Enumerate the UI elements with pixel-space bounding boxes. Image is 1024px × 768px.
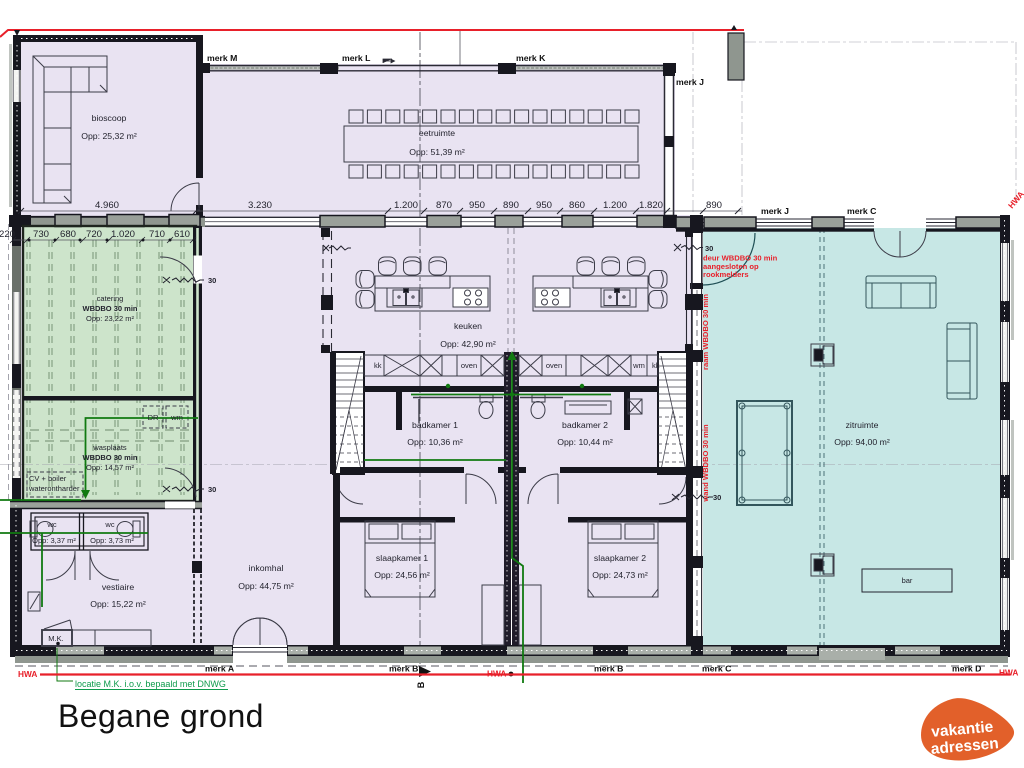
svg-text:950: 950 [469,200,485,211]
svg-text:kk: kk [374,361,382,370]
svg-text:Opp: 94,00 m²: Opp: 94,00 m² [834,437,890,447]
svg-text:Opp: 10,36 m²: Opp: 10,36 m² [407,437,463,447]
svg-text:wand WBDBO 30 min: wand WBDBO 30 min [701,424,710,503]
svg-text:keuken: keuken [454,321,482,331]
svg-text:Begane grond: Begane grond [58,698,264,734]
svg-text:Opp: 15,22 m²: Opp: 15,22 m² [90,599,146,609]
svg-text:merk M: merk M [207,53,237,63]
svg-text:CV + boiler: CV + boiler [29,474,67,483]
svg-text:30: 30 [208,276,216,285]
svg-text:merk C: merk C [702,664,732,674]
svg-text:HWA: HWA [999,668,1018,678]
svg-text:3.230: 3.230 [248,200,272,211]
svg-text:Opp: 23,22 m²: Opp: 23,22 m² [86,314,134,323]
svg-text:Opp: 24,73 m²: Opp: 24,73 m² [592,570,648,580]
svg-text:720: 720 [86,229,102,240]
svg-text:badkamer 2: badkamer 2 [562,420,608,430]
svg-text:wm: wm [632,361,645,370]
svg-text:locatie M.K. i.o.v. bepaald me: locatie M.K. i.o.v. bepaald met DNWG [75,679,226,689]
svg-text:890: 890 [503,200,519,211]
svg-text:raam WBDBO 30 min: raam WBDBO 30 min [701,294,710,370]
svg-text:1.820: 1.820 [639,200,663,211]
svg-text:merk C: merk C [847,206,877,216]
svg-text:1.020: 1.020 [111,229,135,240]
svg-text:catering: catering [97,294,124,303]
svg-text:Opp: 25,32 m²: Opp: 25,32 m² [81,131,137,141]
svg-text:1.200: 1.200 [603,200,627,211]
svg-text:Opp: 42,90 m²: Opp: 42,90 m² [440,339,496,349]
svg-text:HWA: HWA [18,669,37,679]
svg-text:merk K: merk K [516,53,546,63]
svg-text:220: 220 [0,229,15,240]
svg-text:B: B [416,681,426,688]
svg-text:vestiaire: vestiaire [102,582,135,592]
svg-text:oven: oven [546,361,562,370]
svg-text:950: 950 [536,200,552,211]
svg-text:860: 860 [569,200,585,211]
svg-text:870: 870 [436,200,452,211]
svg-text:30: 30 [208,485,216,494]
svg-text:slaapkamer 2: slaapkamer 2 [594,553,646,563]
svg-text:Opp: 14,57 m²: Opp: 14,57 m² [86,463,134,472]
svg-text:wm: wm [170,413,183,422]
svg-text:inkomhal: inkomhal [249,563,284,573]
svg-text:Opp: 44,75 m²: Opp: 44,75 m² [238,581,294,591]
svg-text:WBDBO 30 min: WBDBO 30 min [82,304,137,313]
svg-text:bioscoop: bioscoop [92,113,127,123]
svg-text:680: 680 [60,229,76,240]
svg-text:wc: wc [46,520,56,529]
svg-text:merk B: merk B [594,664,623,674]
svg-text:WBDBO 30 min: WBDBO 30 min [82,453,137,462]
svg-text:4.960: 4.960 [95,200,119,211]
svg-text:merk A: merk A [205,664,235,674]
svg-text:30: 30 [705,244,713,253]
svg-text:Opp: 10,44 m²: Opp: 10,44 m² [557,437,613,447]
svg-text:Opp: 24,56 m²: Opp: 24,56 m² [374,570,430,580]
svg-text:merk L: merk L [342,53,371,63]
svg-text:Opp: 3,73 m²: Opp: 3,73 m² [90,536,134,545]
svg-text:merk D: merk D [952,664,981,674]
svg-text:Opp: 3,37 m²: Opp: 3,37 m² [32,536,76,545]
svg-text:slaapkamer 1: slaapkamer 1 [376,553,428,563]
svg-text:890: 890 [706,200,722,211]
svg-text:merk B: merk B [389,664,418,674]
svg-text:merk J: merk J [676,77,704,87]
svg-text:kk: kk [652,361,660,370]
svg-text:wc: wc [104,520,114,529]
svg-text:wasplaats: wasplaats [92,443,127,452]
svg-text:bar: bar [902,576,913,585]
svg-text:DR: DR [148,413,159,422]
svg-text:badkamer 1: badkamer 1 [412,420,458,430]
svg-text:710: 710 [149,229,165,240]
svg-text:610: 610 [174,229,190,240]
svg-text:M.K.: M.K. [48,634,63,643]
svg-text:merk J: merk J [761,206,789,216]
svg-text:oven: oven [461,361,477,370]
svg-text:zitruimte: zitruimte [846,420,879,430]
svg-text:Opp: 51,39 m²: Opp: 51,39 m² [409,147,465,157]
svg-text:eetruimte: eetruimte [419,128,455,138]
svg-text:1.200: 1.200 [394,200,418,211]
svg-text:30: 30 [713,493,721,502]
svg-text:730: 730 [33,229,49,240]
svg-text:rookmelders: rookmelders [703,270,749,279]
svg-text:waterontharder: waterontharder [28,484,80,493]
